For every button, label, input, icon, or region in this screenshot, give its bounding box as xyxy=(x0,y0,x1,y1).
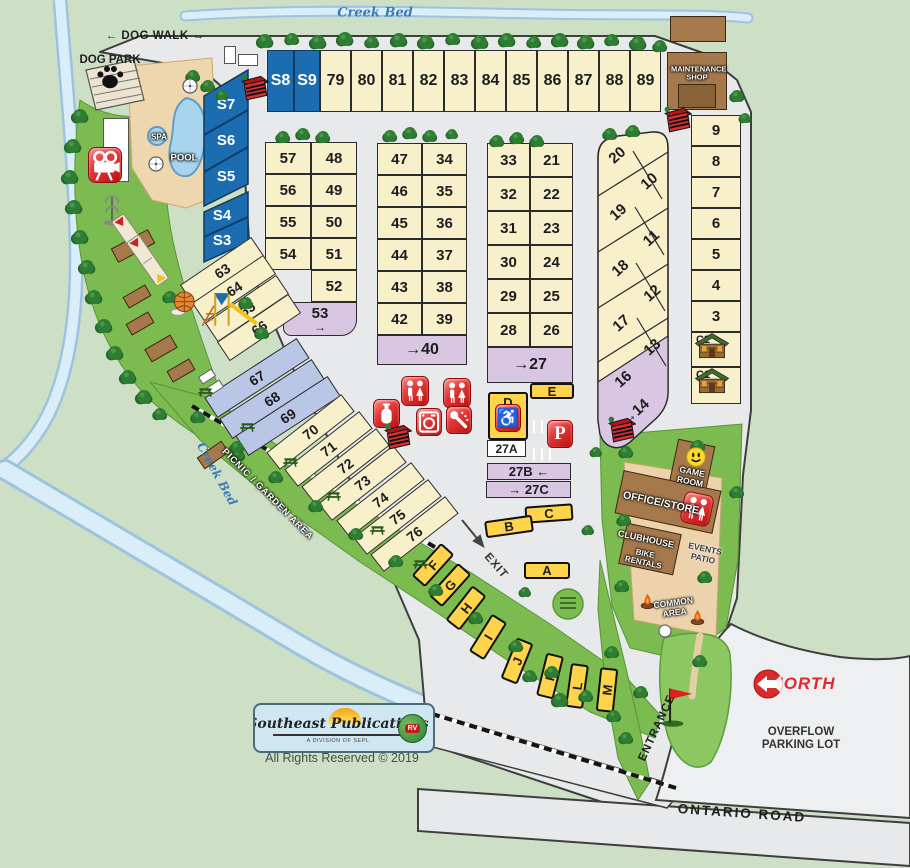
common-area-label: COMMON AREA xyxy=(650,595,698,620)
legend: Legend Regular SitesStudio LodgeStandard… xyxy=(760,0,910,868)
events-patio-label: EVENTS PATIO xyxy=(682,541,725,568)
office-store-label: OFFICE/STORE xyxy=(622,489,700,517)
maintenance-shop-label: MAINTENANCE SHOP xyxy=(671,66,723,83)
creek-bed-left-label: Creek Bed xyxy=(194,440,240,508)
pool-label: POOL xyxy=(171,153,198,164)
dog-walk-label: ← DOG WALK → xyxy=(106,30,205,42)
creek-bed-top-label: Creek Bed xyxy=(337,6,413,21)
dog-park-label: DOG PARK xyxy=(79,54,140,66)
exit-label: EXIT xyxy=(482,551,510,581)
bike-rentals-label: BIKE RENTALS xyxy=(623,546,666,572)
publisher-logo-icon: RV xyxy=(398,714,427,743)
game-room-label: GAME ROOM xyxy=(670,464,711,491)
publisher-box: Southeast Publications A DIVISION OF SEP… xyxy=(253,703,435,753)
publisher-division: A DIVISION OF SEPL xyxy=(307,738,370,744)
spa-label: SPA xyxy=(151,133,167,142)
rights-label: All Rights Reserved © 2019 xyxy=(265,751,419,765)
campground-map: S8S979808182838485868788899876543C2C1574… xyxy=(0,0,910,868)
entrance-label: ENTRANCE xyxy=(636,693,677,763)
